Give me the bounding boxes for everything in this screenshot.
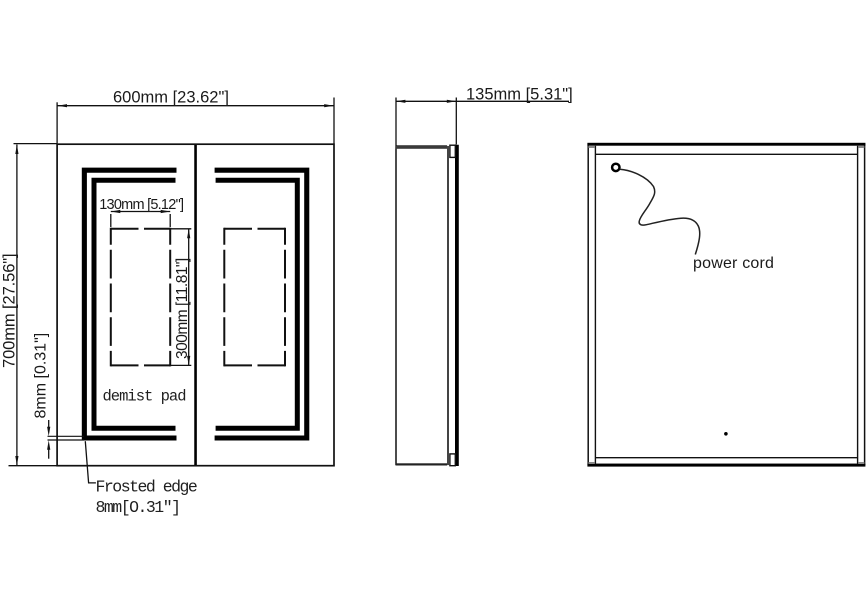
svg-text:8mm [0.31"]: 8mm [0.31"]	[33, 333, 50, 419]
svg-text:8mm[O.31"]: 8mm[O.31"]	[96, 498, 180, 517]
svg-text:300mm [11.81"]: 300mm [11.81"]	[174, 258, 191, 359]
svg-text:demist pad: demist pad	[103, 388, 186, 406]
svg-text:600mm [23.62"]: 600mm [23.62"]	[113, 89, 229, 107]
svg-text:135mm [5.31"]: 135mm [5.31"]	[466, 85, 573, 103]
svg-text:130mm [5.12"]: 130mm [5.12"]	[99, 197, 183, 213]
svg-text:700mm [27.56"]: 700mm [27.56"]	[1, 253, 19, 368]
svg-text:power cord: power cord	[693, 255, 774, 272]
svg-text:Frosted edge: Frosted edge	[96, 478, 197, 497]
